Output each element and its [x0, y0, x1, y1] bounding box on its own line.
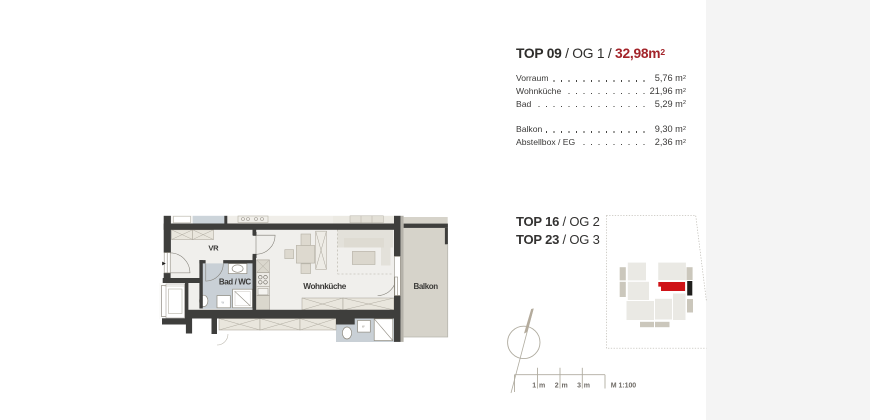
svg-text:3: 3 — [577, 382, 581, 389]
svg-text:m: m — [584, 382, 590, 389]
svg-text:Bad / WC: Bad / WC — [219, 277, 252, 286]
svg-text:2: 2 — [555, 382, 559, 389]
svg-text:m: m — [539, 382, 545, 389]
svg-text:Balkon: Balkon — [413, 282, 438, 291]
svg-text:w: w — [222, 301, 225, 305]
svg-text:M 1:100: M 1:100 — [611, 382, 636, 389]
svg-text:1: 1 — [532, 382, 536, 389]
svg-text:VR: VR — [208, 244, 219, 253]
svg-text:Wohnküche: Wohnküche — [303, 282, 346, 291]
svg-text:m: m — [562, 382, 568, 389]
